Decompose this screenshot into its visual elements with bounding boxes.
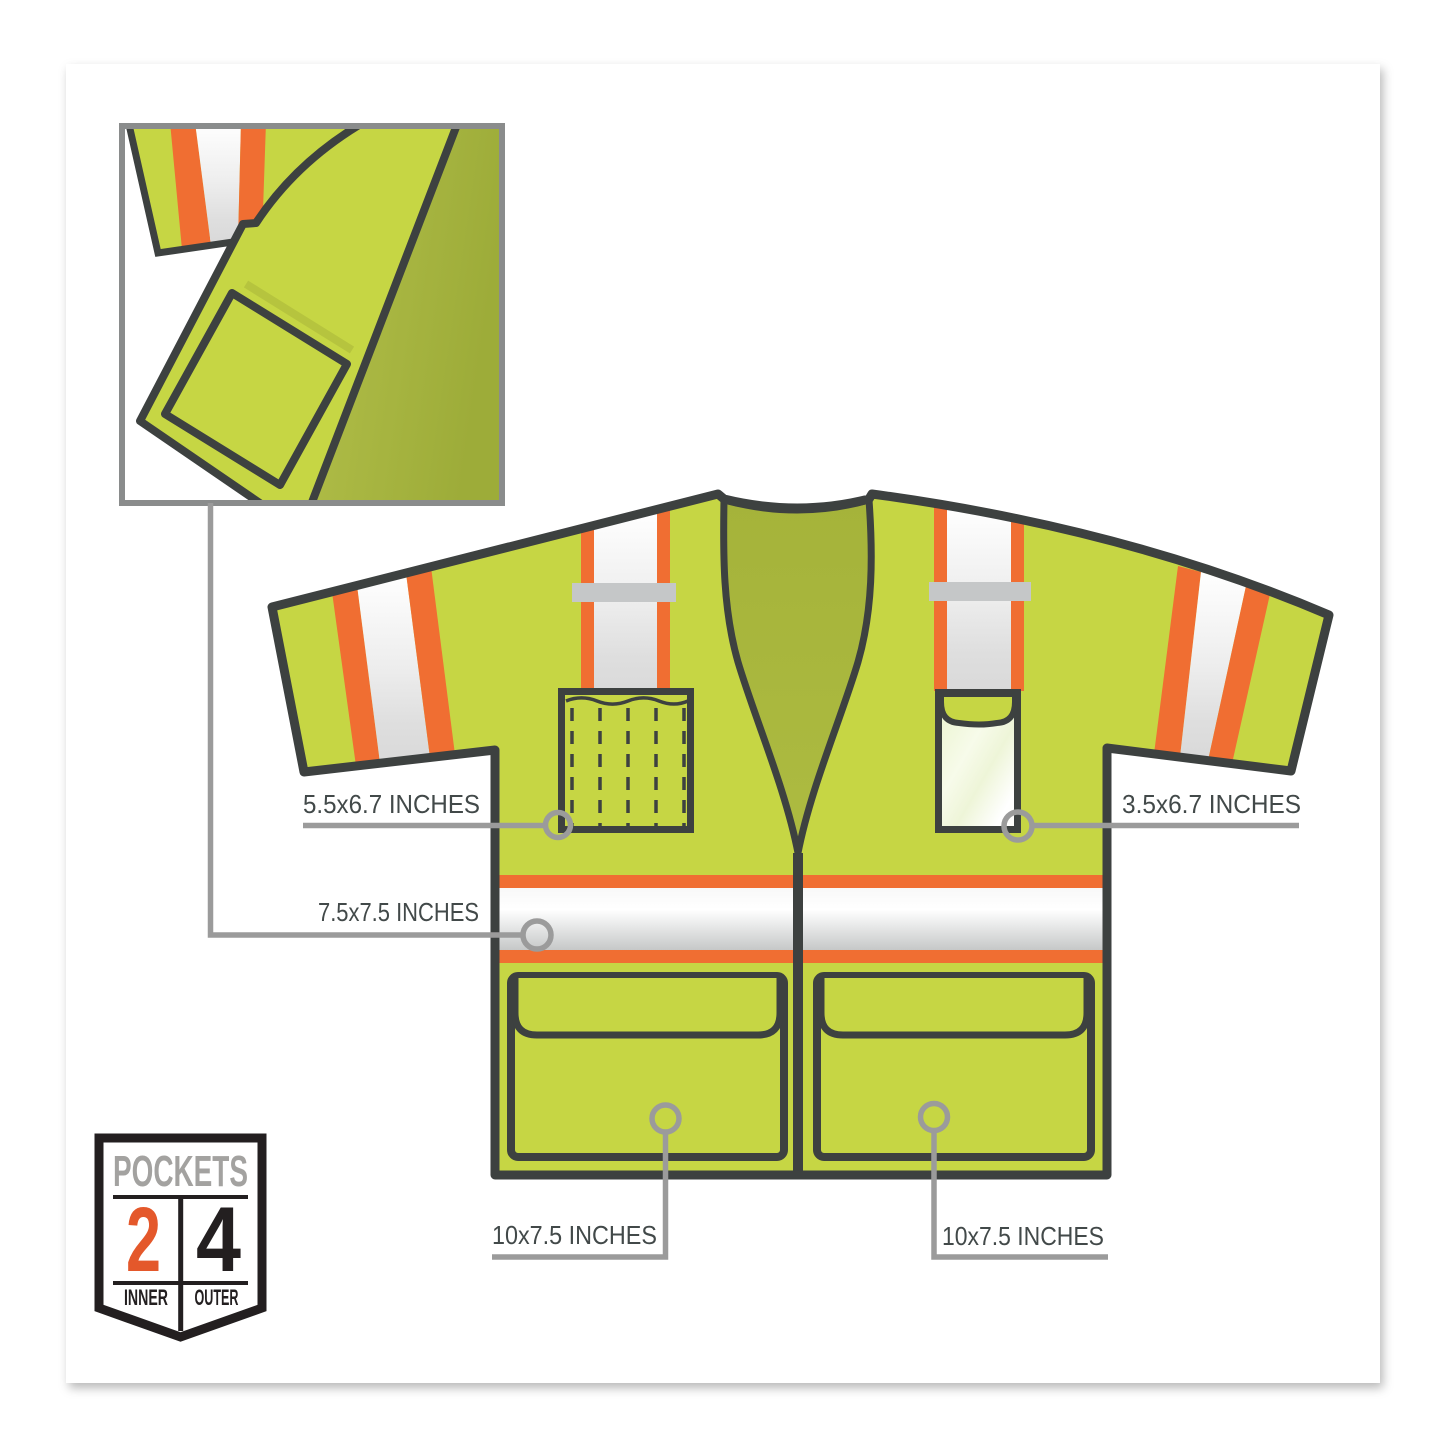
- svg-text:5.5x6.7 INCHES: 5.5x6.7 INCHES: [303, 789, 480, 819]
- svg-text:10x7.5 INCHES: 10x7.5 INCHES: [942, 1221, 1104, 1251]
- svg-text:OUTER: OUTER: [195, 1285, 239, 1310]
- svg-text:10x7.5 INCHES: 10x7.5 INCHES: [492, 1220, 657, 1250]
- svg-text:INNER: INNER: [124, 1285, 168, 1310]
- svg-text:2: 2: [126, 1189, 161, 1291]
- svg-text:7.5x7.5 INCHES: 7.5x7.5 INCHES: [318, 897, 479, 927]
- svg-text:4: 4: [196, 1189, 241, 1291]
- svg-text:3.5x6.7 INCHES: 3.5x6.7 INCHES: [1122, 789, 1301, 819]
